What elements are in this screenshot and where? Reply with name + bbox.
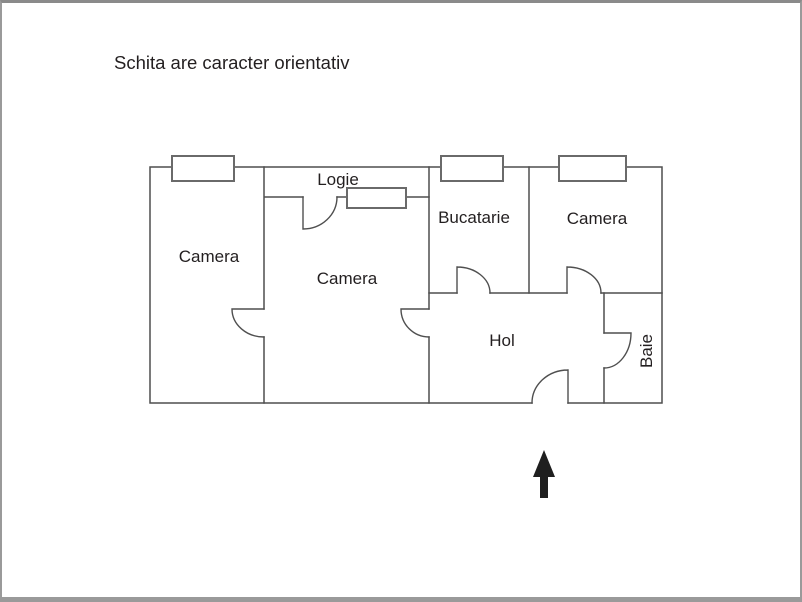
- window-camera-left: [172, 156, 234, 181]
- floorplan-diagram: Schita are caracter orientativ: [0, 0, 802, 602]
- door-logie: [303, 197, 337, 229]
- disclaimer-title: Schita are caracter orientativ: [114, 52, 350, 73]
- floorplan-page: Schita are caracter orientativ: [0, 0, 802, 602]
- door-camera-left: [232, 309, 264, 337]
- door-bucatarie: [457, 267, 490, 293]
- door-baie: [604, 333, 631, 368]
- room-label-camera-middle: Camera: [317, 269, 378, 288]
- room-label-bucatarie: Bucatarie: [438, 208, 510, 227]
- window-logie: [347, 188, 406, 208]
- window-bucatarie: [441, 156, 503, 181]
- room-label-baie: Baie: [637, 334, 656, 368]
- room-label-camera-left: Camera: [179, 247, 240, 266]
- windows-group: [172, 156, 626, 208]
- door-entry: [532, 370, 568, 403]
- room-label-hol: Hol: [489, 331, 515, 350]
- door-camera-middle: [401, 309, 429, 337]
- north-arrow-icon: [533, 450, 555, 498]
- room-label-camera-right: Camera: [567, 209, 628, 228]
- window-camera-right: [559, 156, 626, 181]
- door-camera-right: [567, 267, 601, 293]
- room-labels-group: Camera Camera Logie Bucatarie Camera Hol…: [179, 170, 656, 368]
- room-label-logie: Logie: [317, 170, 359, 189]
